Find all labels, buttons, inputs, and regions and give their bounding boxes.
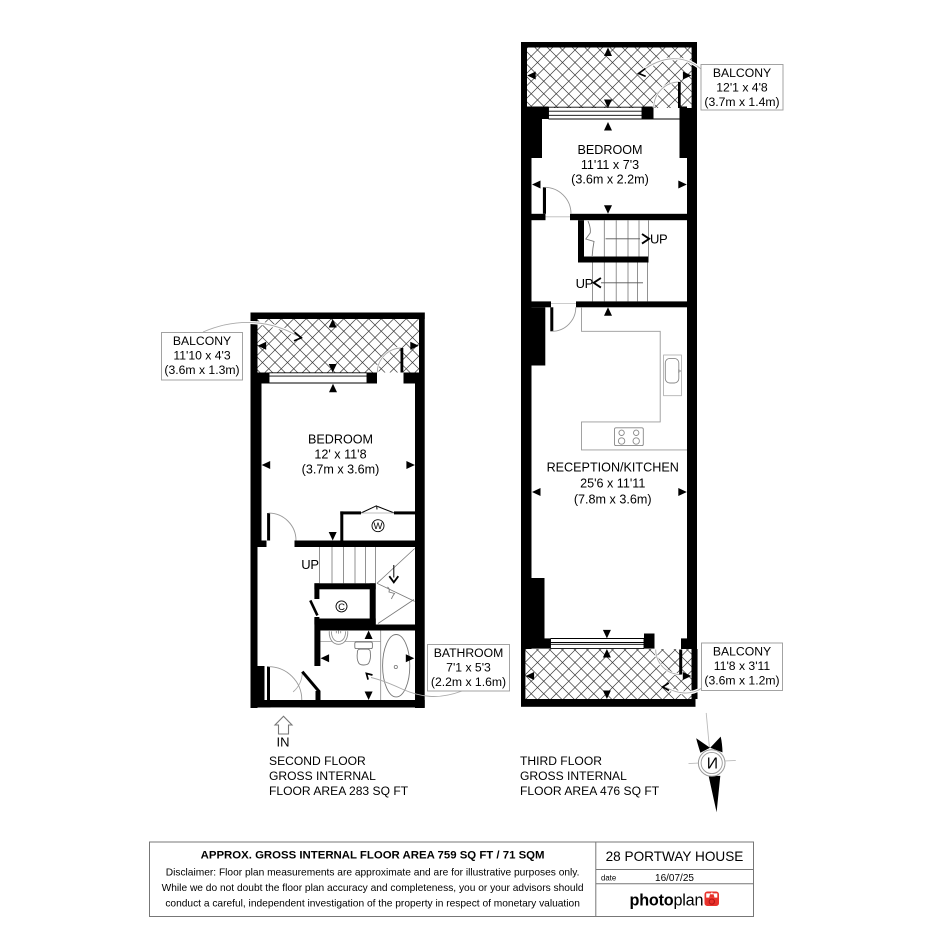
svg-text:11'11 x 7'3: 11'11 x 7'3 bbox=[581, 158, 639, 172]
svg-text:UP: UP bbox=[301, 557, 318, 572]
svg-text:FLOOR AREA 283 SQ FT: FLOOR AREA 283 SQ FT bbox=[269, 784, 409, 798]
svg-text:conduct a careful, independent: conduct a careful, independent investiga… bbox=[165, 899, 580, 910]
svg-text:7'1 x 5'3: 7'1 x 5'3 bbox=[446, 661, 491, 675]
svg-text:GROSS INTERNAL: GROSS INTERNAL bbox=[269, 769, 376, 783]
svg-text:BEDROOM: BEDROOM bbox=[308, 433, 373, 447]
svg-text:(3.7m x 3.6m): (3.7m x 3.6m) bbox=[302, 463, 380, 477]
svg-text:N: N bbox=[707, 756, 718, 773]
svg-text:C: C bbox=[338, 602, 345, 613]
svg-text:W: W bbox=[374, 521, 383, 532]
svg-text:THIRD FLOOR: THIRD FLOOR bbox=[520, 754, 602, 768]
svg-text:UP: UP bbox=[576, 276, 593, 291]
svg-text:(3.7m x 1.4m): (3.7m x 1.4m) bbox=[704, 95, 779, 109]
svg-text:28 PORTWAY HOUSE: 28 PORTWAY HOUSE bbox=[606, 849, 744, 864]
svg-text:BALCONY: BALCONY bbox=[713, 66, 771, 80]
svg-text:(2.2m x 1.6m): (2.2m x 1.6m) bbox=[431, 675, 506, 689]
svg-text:RECEPTION/KITCHEN: RECEPTION/KITCHEN bbox=[547, 460, 679, 474]
svg-text:(7.8m x 3.6m): (7.8m x 3.6m) bbox=[574, 492, 652, 506]
svg-text:(3.6m x 2.2m): (3.6m x 2.2m) bbox=[571, 173, 649, 187]
svg-text:Disclaimer: Floor plan measure: Disclaimer: Floor plan measurements are … bbox=[166, 868, 580, 879]
svg-text:BATHROOM: BATHROOM bbox=[434, 646, 504, 660]
svg-text:25'6 x 11'11: 25'6 x 11'11 bbox=[580, 476, 645, 490]
svg-text:11'10 x 4'3: 11'10 x 4'3 bbox=[173, 349, 231, 363]
svg-text:UP: UP bbox=[650, 232, 667, 247]
svg-text:(3.6m x 1.2m): (3.6m x 1.2m) bbox=[704, 674, 779, 688]
svg-text:SECOND FLOOR: SECOND FLOOR bbox=[269, 754, 366, 768]
svg-text:12'1 x 4'8: 12'1 x 4'8 bbox=[716, 81, 768, 95]
svg-text:FLOOR AREA 476 SQ FT: FLOOR AREA 476 SQ FT bbox=[520, 784, 660, 798]
svg-text:(3.6m x 1.3m): (3.6m x 1.3m) bbox=[164, 363, 239, 377]
svg-text:APPROX. GROSS INTERNAL FLOOR A: APPROX. GROSS INTERNAL FLOOR AREA 759 SQ… bbox=[201, 850, 545, 862]
svg-text:While we do not doubt the floo: While we do not doubt the floor plan acc… bbox=[162, 883, 584, 894]
svg-text:date: date bbox=[601, 874, 616, 883]
svg-text:BEDROOM: BEDROOM bbox=[577, 143, 642, 157]
svg-text:11'8 x 3'11: 11'8 x 3'11 bbox=[714, 659, 771, 673]
svg-text:BALCONY: BALCONY bbox=[173, 334, 231, 348]
svg-text:BALCONY: BALCONY bbox=[713, 645, 771, 659]
svg-text:photoplan: photoplan bbox=[630, 892, 704, 910]
svg-text:GROSS INTERNAL: GROSS INTERNAL bbox=[520, 769, 627, 783]
svg-text:12' x 11'8: 12' x 11'8 bbox=[314, 448, 366, 462]
svg-text:IN: IN bbox=[277, 734, 290, 749]
svg-text:16/07/25: 16/07/25 bbox=[655, 873, 694, 884]
